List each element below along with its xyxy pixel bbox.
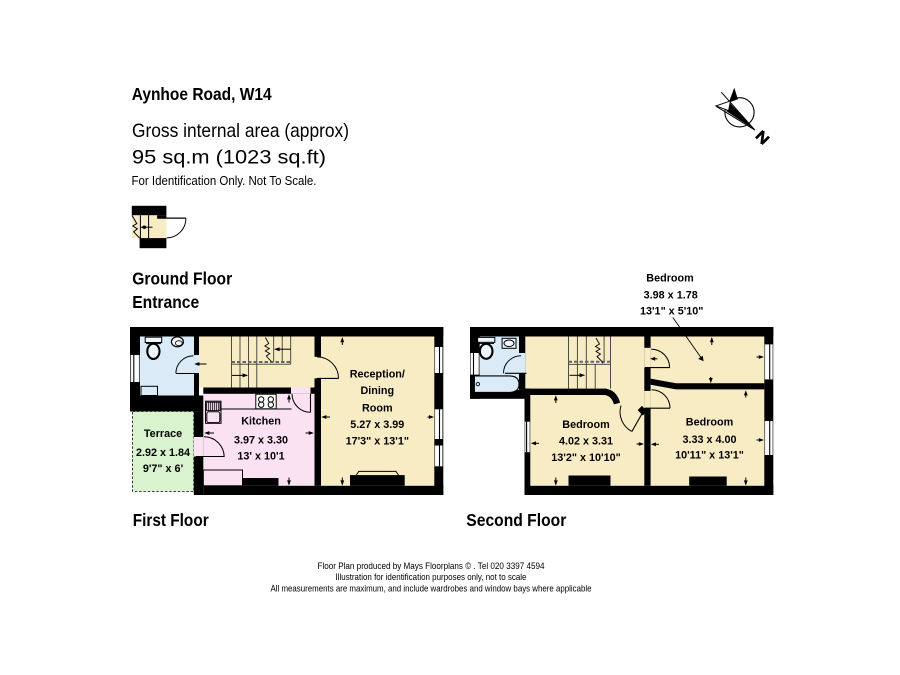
svg-text:Dining: Dining (361, 385, 395, 397)
svg-text:3.98 x 1.78: 3.98 x 1.78 (644, 289, 698, 301)
svg-text:For Identification Only. Not T: For Identification Only. Not To Scale. (132, 173, 317, 188)
svg-text:13'1" x 5'10": 13'1" x 5'10" (640, 305, 703, 317)
svg-text:Bedroom: Bedroom (686, 417, 733, 429)
svg-text:Gross internal area (approx): Gross internal area (approx) (132, 120, 349, 142)
svg-text:All measurements are maximum,: All measurements are maximum, and includ… (271, 583, 592, 593)
svg-text:Illustration for identificatio: Illustration for identification purposes… (336, 572, 527, 582)
svg-text:5.27 x 3.99: 5.27 x 3.99 (350, 419, 404, 431)
svg-text:3.97 x 3.30: 3.97 x 3.30 (234, 434, 288, 446)
svg-text:13'2" x 10'10": 13'2" x 10'10" (551, 452, 620, 464)
svg-text:Room: Room (362, 403, 393, 415)
svg-text:95 sq.m (1023 sq.ft): 95 sq.m (1023 sq.ft) (132, 147, 326, 169)
svg-text:Bedroom: Bedroom (562, 419, 609, 431)
svg-text:17'3" x 13'1": 17'3" x 13'1" (346, 436, 409, 448)
svg-text:Bedroom: Bedroom (646, 273, 693, 285)
svg-text:Kitchen: Kitchen (241, 416, 281, 428)
svg-text:Terrace: Terrace (144, 428, 182, 440)
svg-text:2.92 x 1.84: 2.92 x 1.84 (136, 447, 190, 459)
svg-text:Floor Plan produced by Mays Fl: Floor Plan produced by Mays Floorplans ©… (318, 561, 545, 571)
svg-text:Entrance: Entrance (132, 292, 199, 312)
svg-text:Second Floor: Second Floor (466, 510, 566, 530)
svg-text:Reception/: Reception/ (350, 368, 405, 380)
svg-text:10'11" x 13'1": 10'11" x 13'1" (675, 449, 744, 461)
svg-text:Ground Floor: Ground Floor (132, 268, 232, 288)
svg-text:Aynhoe Road, W14: Aynhoe Road, W14 (132, 84, 272, 104)
svg-text:4.02 x 3.31: 4.02 x 3.31 (559, 436, 613, 448)
svg-text:First Floor: First Floor (133, 510, 209, 530)
svg-text:3.33 x 4.00: 3.33 x 4.00 (682, 434, 736, 446)
svg-text:9'7" x 6': 9'7" x 6' (143, 463, 184, 475)
svg-text:13' x 10'1: 13' x 10'1 (237, 451, 284, 463)
